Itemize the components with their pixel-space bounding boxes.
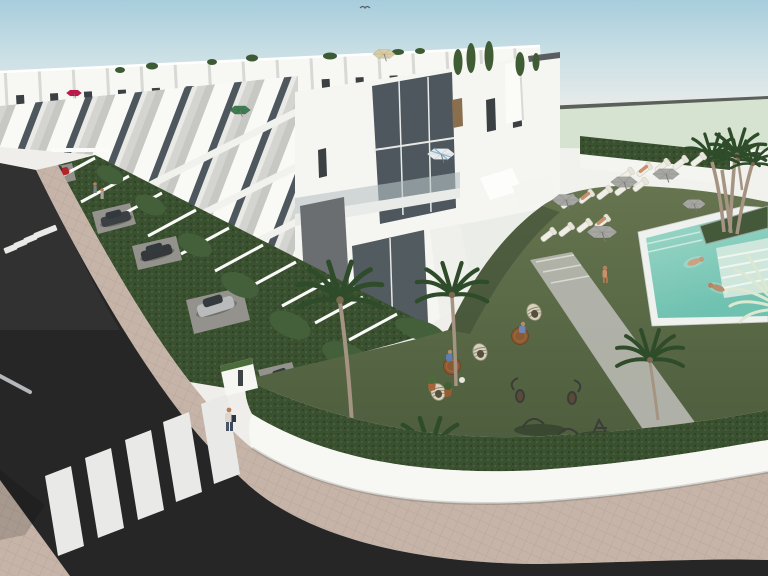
louvre-shutter [452, 98, 463, 128]
window [318, 148, 327, 178]
window [486, 98, 496, 132]
architectural-render: Aerial 3D architectural rendering of a m… [0, 0, 768, 576]
